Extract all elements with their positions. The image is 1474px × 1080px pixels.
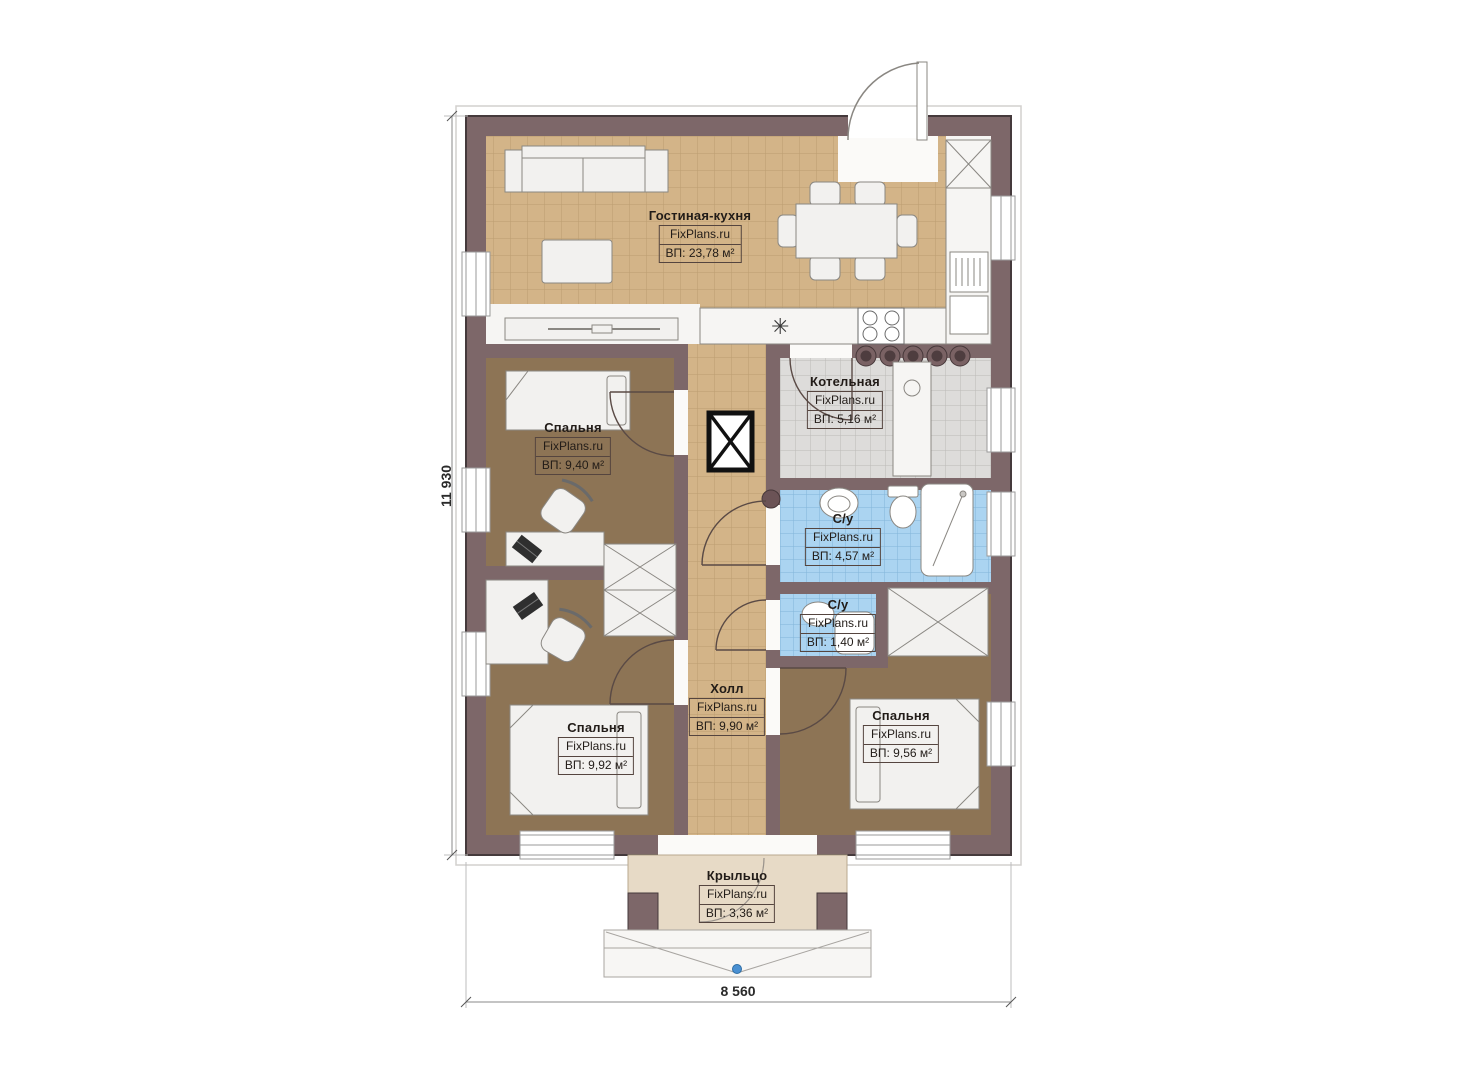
room-brand: FixPlans.ru xyxy=(559,738,633,757)
window-boiler xyxy=(987,388,1015,452)
room-brand: FixPlans.ru xyxy=(700,886,774,905)
dimension-height-label: 11 930 xyxy=(438,465,454,507)
room-brand: FixPlans.ru xyxy=(660,226,741,245)
room-name: Крыльцо xyxy=(699,868,775,883)
wardrobe-icon xyxy=(888,588,988,656)
room-label-bedroom-3: Спальня FixPlans.ru ВП: 9,56 м² xyxy=(863,708,939,763)
oven-icon xyxy=(950,296,988,334)
room-area: ВП: 9,92 м² xyxy=(559,757,633,775)
room-name: С/у xyxy=(800,597,876,612)
window-bedroom3-south xyxy=(856,831,950,859)
window-bath1 xyxy=(987,492,1015,556)
porch-steps xyxy=(604,930,871,977)
window-bedroom3 xyxy=(987,702,1015,766)
window-bedroom1 xyxy=(462,468,490,532)
room-label-living-kitchen: Гостиная-кухня FixPlans.ru ВП: 23,78 м² xyxy=(649,208,751,263)
room-brand: FixPlans.ru xyxy=(536,438,610,457)
room-name: Котельная xyxy=(807,374,883,389)
floor-plan-page: ✳ xyxy=(0,0,1474,1080)
room-area: ВП: 9,90 м² xyxy=(690,718,764,736)
dimension-width-label: 8 560 xyxy=(720,983,755,999)
dishwasher-icon xyxy=(950,252,988,292)
window-living xyxy=(462,252,490,316)
room-area: ВП: 5,16 м² xyxy=(808,411,882,429)
room-name: Спальня xyxy=(863,708,939,723)
fridge-icon xyxy=(946,140,991,188)
room-name: Спальня xyxy=(535,420,611,435)
room-label-bedroom-2: Спальня FixPlans.ru ВП: 9,92 м² xyxy=(558,720,634,775)
tv-stand xyxy=(505,318,678,340)
room-area: ВП: 4,57 м² xyxy=(806,548,880,566)
room-name: Холл xyxy=(689,681,765,696)
room-brand: FixPlans.ru xyxy=(864,726,938,745)
room-brand: FixPlans.ru xyxy=(808,392,882,411)
window-bedroom2-south xyxy=(520,831,614,859)
water-heater-icon xyxy=(762,490,780,508)
room-label-bedroom-1: Спальня FixPlans.ru ВП: 9,40 м² xyxy=(535,420,611,475)
chimney-shaft-icon xyxy=(709,413,752,470)
room-name: Гостиная-кухня xyxy=(649,208,751,223)
sofa xyxy=(505,146,668,192)
room-area: ВП: 23,78 м² xyxy=(660,245,741,263)
room-name: Спальня xyxy=(558,720,634,735)
toilet-icon xyxy=(888,486,918,528)
room-area: ВП: 1,40 м² xyxy=(801,634,875,652)
room-area: ВП: 3,36 м² xyxy=(700,905,774,923)
room-label-bathroom-1: С/у FixPlans.ru ВП: 4,57 м² xyxy=(805,511,881,566)
stove-icon xyxy=(858,308,904,344)
wardrobe-icon xyxy=(604,544,676,636)
desk xyxy=(486,580,548,664)
room-label-hall: Холл FixPlans.ru ВП: 9,90 м² xyxy=(689,681,765,736)
coffee-table xyxy=(542,240,612,283)
room-brand: FixPlans.ru xyxy=(806,529,880,548)
entrance-door xyxy=(848,62,928,140)
marker-dot xyxy=(733,965,742,974)
room-area: ВП: 9,40 м² xyxy=(536,457,610,475)
room-label-boiler: Котельная FixPlans.ru ВП: 5,16 м² xyxy=(807,374,883,429)
room-brand: FixPlans.ru xyxy=(801,615,875,634)
room-label-bathroom-2: С/у FixPlans.ru ВП: 1,40 м² xyxy=(800,597,876,652)
sink-icon: ✳ xyxy=(771,314,789,339)
room-area: ВП: 9,56 м² xyxy=(864,745,938,763)
room-name: С/у xyxy=(805,511,881,526)
room-brand: FixPlans.ru xyxy=(690,699,764,718)
boiler-fixtures xyxy=(893,362,931,476)
shower-icon xyxy=(921,484,973,576)
room-label-porch: Крыльцо FixPlans.ru ВП: 3,36 м² xyxy=(699,868,775,923)
